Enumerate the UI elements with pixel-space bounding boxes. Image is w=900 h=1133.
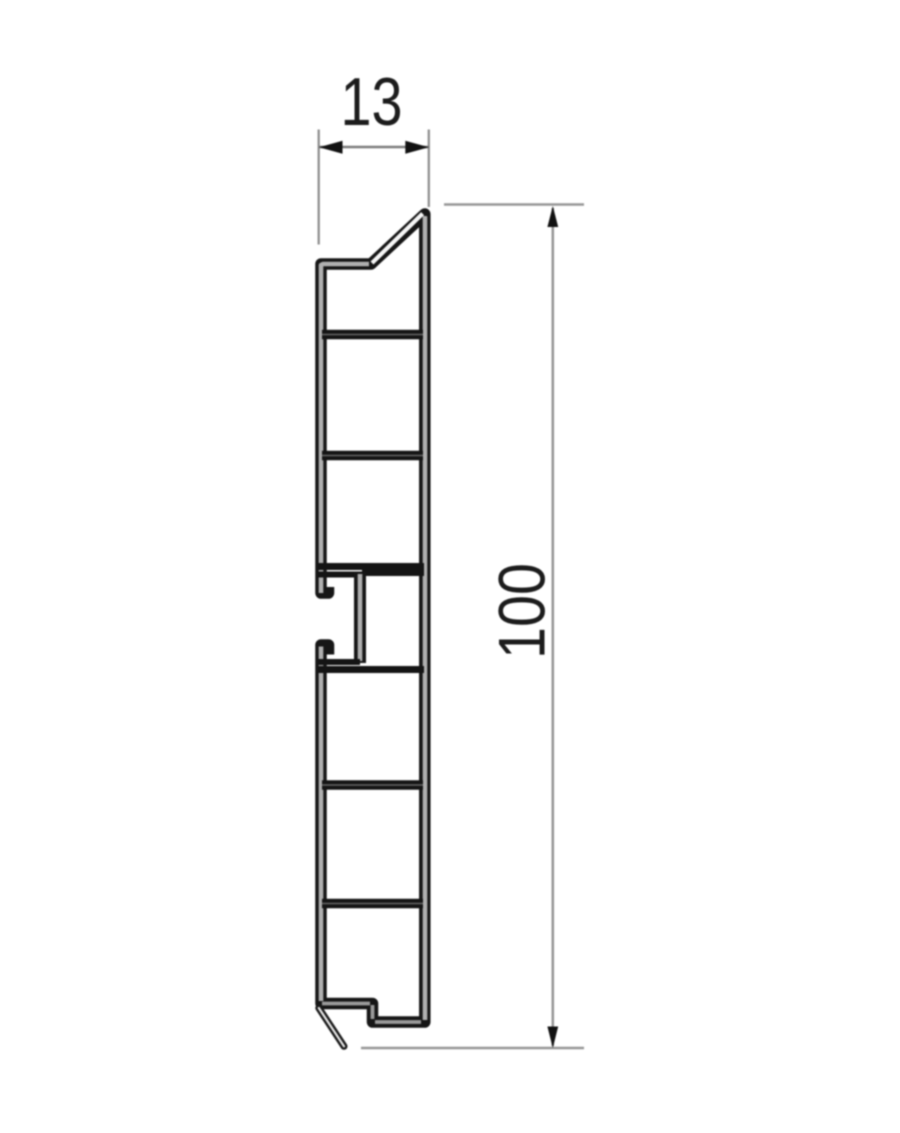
svg-text:100: 100 xyxy=(485,563,559,659)
svg-text:13: 13 xyxy=(341,64,403,140)
